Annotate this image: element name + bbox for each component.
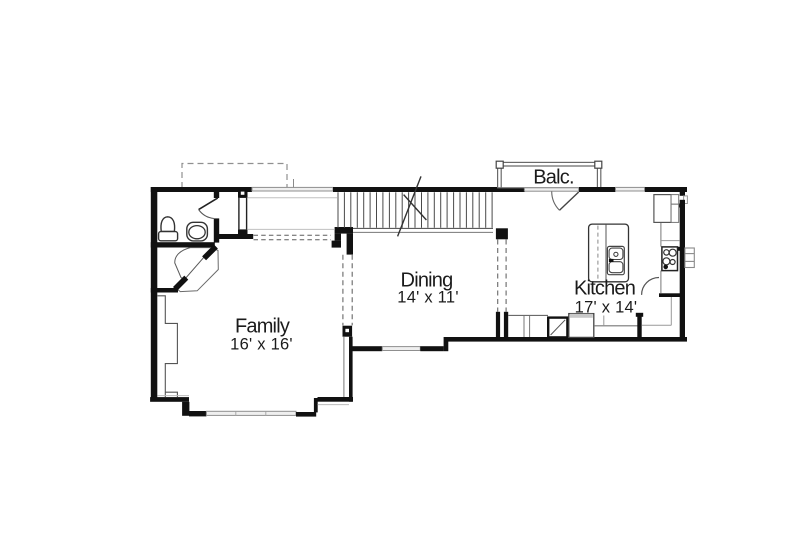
svg-text:Balc.: Balc. bbox=[533, 167, 573, 189]
svg-text:16' x 16': 16' x 16' bbox=[230, 336, 293, 354]
svg-text:Kitchen: Kitchen bbox=[574, 278, 635, 300]
svg-text:14' x 11': 14' x 11' bbox=[397, 289, 458, 307]
svg-text:17' x 14': 17' x 14' bbox=[575, 299, 638, 317]
svg-text:Family: Family bbox=[235, 316, 290, 338]
